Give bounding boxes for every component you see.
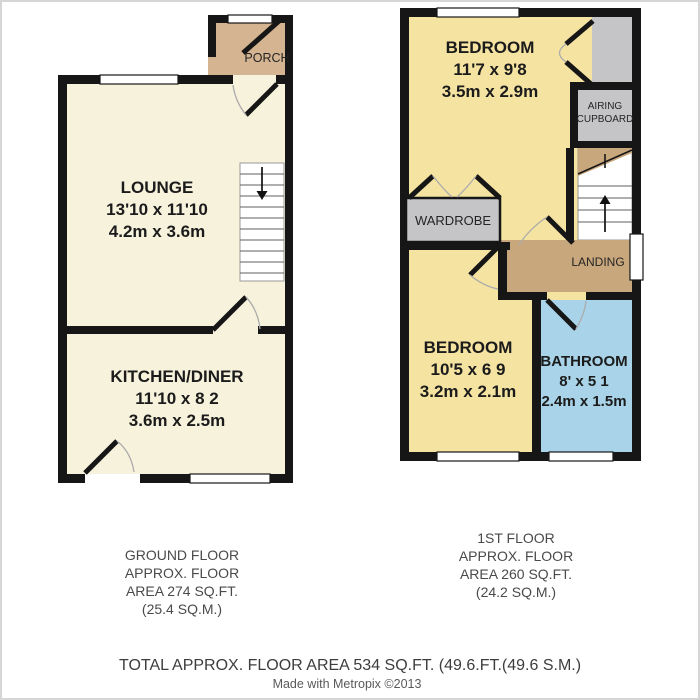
landing-window [630, 234, 643, 280]
bedroom2-metric-dims: 3.2m x 2.1m [420, 381, 516, 403]
airing-cupboard-label-line1: AIRING [577, 100, 634, 113]
lounge-kitchen-divider-stub [258, 326, 285, 334]
ground-floor-caption: GROUND FLOOR APPROX. FLOOR AREA 274 SQ.F… [125, 546, 239, 618]
porch-bottom-wall-stub-right [276, 75, 285, 84]
kitchen-window [190, 474, 270, 483]
porch-bottom-wall-stub-left [208, 75, 233, 84]
floorplan-page: PORCH LOUNGE 13'10 x 11'10 4.2m x 3.6m K… [0, 0, 700, 700]
kitchen-back-door-opening [85, 474, 140, 483]
bathroom-window [549, 452, 613, 461]
bathroom-label: BATHROOM 8' x 5 1 2.4m x 1.5m [540, 352, 627, 412]
bedroom2-name: BEDROOM [420, 337, 516, 359]
metropix-credit: Made with Metropix ©2013 [273, 677, 422, 691]
bathroom-imperial-dims: 8' x 5 1 [540, 372, 627, 392]
wardrobe-label: WARDROBE [415, 213, 491, 228]
bedroom2-label: BEDROOM 10'5 x 6 9 3.2m x 2.1m [420, 337, 516, 403]
first-floor-caption: 1ST FLOOR APPROX. FLOOR AREA 260 SQ.FT. … [459, 529, 573, 601]
bedroom1-name: BEDROOM [442, 37, 538, 59]
kitchen-name: KITCHEN/DINER [110, 366, 243, 388]
left-exterior-wall [58, 75, 67, 483]
bathroom-metric-dims: 2.4m x 1.5m [540, 392, 627, 412]
airing-cupboard-label: AIRING CUPBOARD [577, 100, 634, 126]
first-caption-line2: APPROX. FLOOR [459, 547, 573, 565]
lounge-label: LOUNGE 13'10 x 11'10 4.2m x 3.6m [106, 177, 208, 243]
first-caption-line3: AREA 260 SQ.FT. [459, 565, 573, 583]
kitchen-imperial-dims: 11'10 x 8 2 [110, 388, 243, 410]
ground-caption-line1: GROUND FLOOR [125, 546, 239, 564]
ground-caption-line4: (25.4 SQ.M.) [125, 600, 239, 618]
ground-caption-line3: AREA 274 SQ.FT. [125, 582, 239, 600]
bedroom1-metric-dims: 3.5m x 2.9m [442, 81, 538, 103]
first-caption-line1: 1ST FLOOR [459, 529, 573, 547]
landing-bathroom-wall-right [586, 292, 632, 300]
bedroom2-window [437, 452, 519, 461]
landing-left-wall [498, 242, 507, 300]
lounge-window [100, 75, 178, 84]
ground-caption-line2: APPROX. FLOOR [125, 564, 239, 582]
porch-left-wall [208, 15, 216, 57]
airing-cupboard-top-wall [570, 82, 632, 90]
right-exterior-wall [285, 15, 293, 483]
first-caption-line4: (24.2 SQ.M.) [459, 583, 573, 601]
lounge-imperial-dims: 13'10 x 11'10 [106, 199, 208, 221]
kitchen-label: KITCHEN/DINER 11'10 x 8 2 3.6m x 2.5m [110, 366, 243, 432]
first-top-wall [400, 8, 641, 17]
total-area-text: TOTAL APPROX. FLOOR AREA 534 SQ.FT. (49.… [119, 657, 581, 675]
bedroom1-imperial-dims: 11'7 x 9'8 [442, 59, 538, 81]
staircase-left-wall [566, 148, 574, 240]
lounge-metric-dims: 4.2m x 3.6m [106, 221, 208, 243]
bedroom1-window [437, 8, 519, 17]
lounge-name: LOUNGE [106, 177, 208, 199]
bathroom-name: BATHROOM [540, 352, 627, 372]
bedroom2-imperial-dims: 10'5 x 6 9 [420, 359, 516, 381]
kitchen-metric-dims: 3.6m x 2.5m [110, 410, 243, 432]
porch-label: PORCH [244, 51, 289, 65]
bedroom1-label: BEDROOM 11'7 x 9'8 3.5m x 2.9m [442, 37, 538, 103]
landing-label: LANDING [571, 255, 624, 269]
porch-window [228, 15, 272, 23]
airing-cupboard-label-line2: CUPBOARD [577, 113, 634, 126]
lounge-kitchen-divider-wall [58, 326, 213, 334]
overstairs-cupboard [592, 17, 632, 85]
airing-cupboard-bottom-wall [570, 141, 632, 148]
